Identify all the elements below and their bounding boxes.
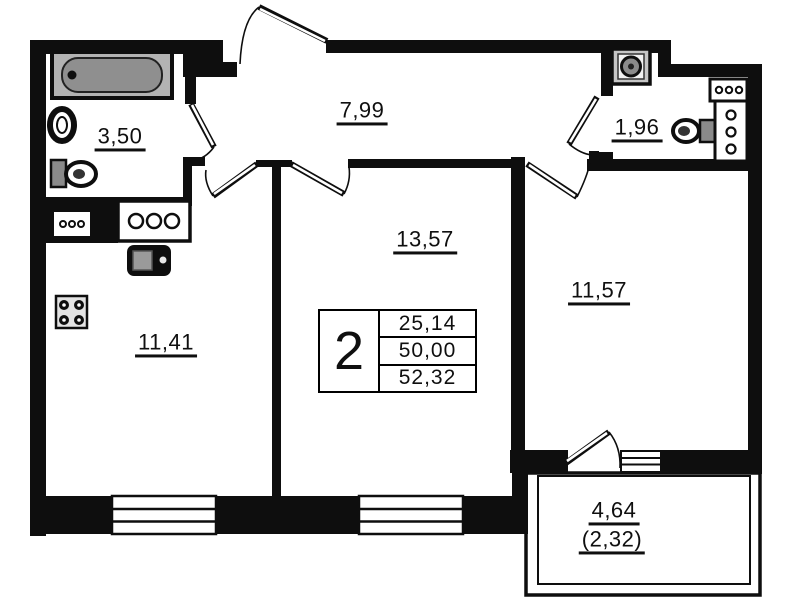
kitchen-door	[206, 164, 257, 196]
bathroom-door	[191, 104, 214, 160]
floorplan-drawing	[0, 0, 799, 600]
bathroom-toilet-icon	[51, 160, 96, 187]
room-label-balcony-reduced: (2,32)	[579, 527, 645, 554]
area-rows: 25,14 50,00 52,32	[380, 311, 475, 391]
total-area-value: 52,32	[380, 366, 475, 391]
balcony-window	[621, 451, 661, 472]
wc-door	[569, 97, 597, 155]
kitchen-counter-icon	[118, 201, 190, 241]
wc-vent-shaft-horizontal-icon	[710, 79, 747, 101]
room-label-kitchen: 11,41	[135, 330, 197, 357]
living-room-door	[291, 164, 349, 194]
kitchen-sink-icon	[127, 245, 171, 276]
floorplan: 3,50 7,99 1,96 13,57 11,57 11,41 4,64 (2…	[0, 0, 799, 600]
vent-shaft-icon	[54, 212, 90, 236]
balcony-door	[566, 432, 620, 468]
bathroom-sink-icon	[50, 109, 74, 141]
apartment-info-table: 2 25,14 50,00 52,32	[318, 309, 477, 393]
stove-icon	[56, 296, 87, 328]
room-label-balcony: 4,64	[589, 498, 640, 525]
room-label-wc: 1,96	[612, 115, 663, 142]
wc-vent-shaft-vertical-icon	[715, 101, 747, 161]
room-label-bedroom: 11,57	[568, 278, 630, 305]
area-without-balcony-value: 50,00	[380, 338, 475, 365]
kitchen-window	[112, 496, 216, 534]
room-label-bathroom: 3,50	[95, 124, 146, 151]
wc-toilet-icon	[673, 120, 715, 142]
washing-machine-icon	[612, 49, 650, 84]
living-room-window	[359, 496, 463, 534]
rooms-count: 2	[320, 311, 380, 391]
living-area-value: 25,14	[380, 311, 475, 338]
entrance-door	[240, 7, 327, 64]
bathtub-icon	[52, 52, 172, 98]
room-label-living-room: 13,57	[393, 227, 457, 254]
bedroom-door	[527, 163, 590, 197]
room-label-hallway: 7,99	[337, 98, 388, 125]
